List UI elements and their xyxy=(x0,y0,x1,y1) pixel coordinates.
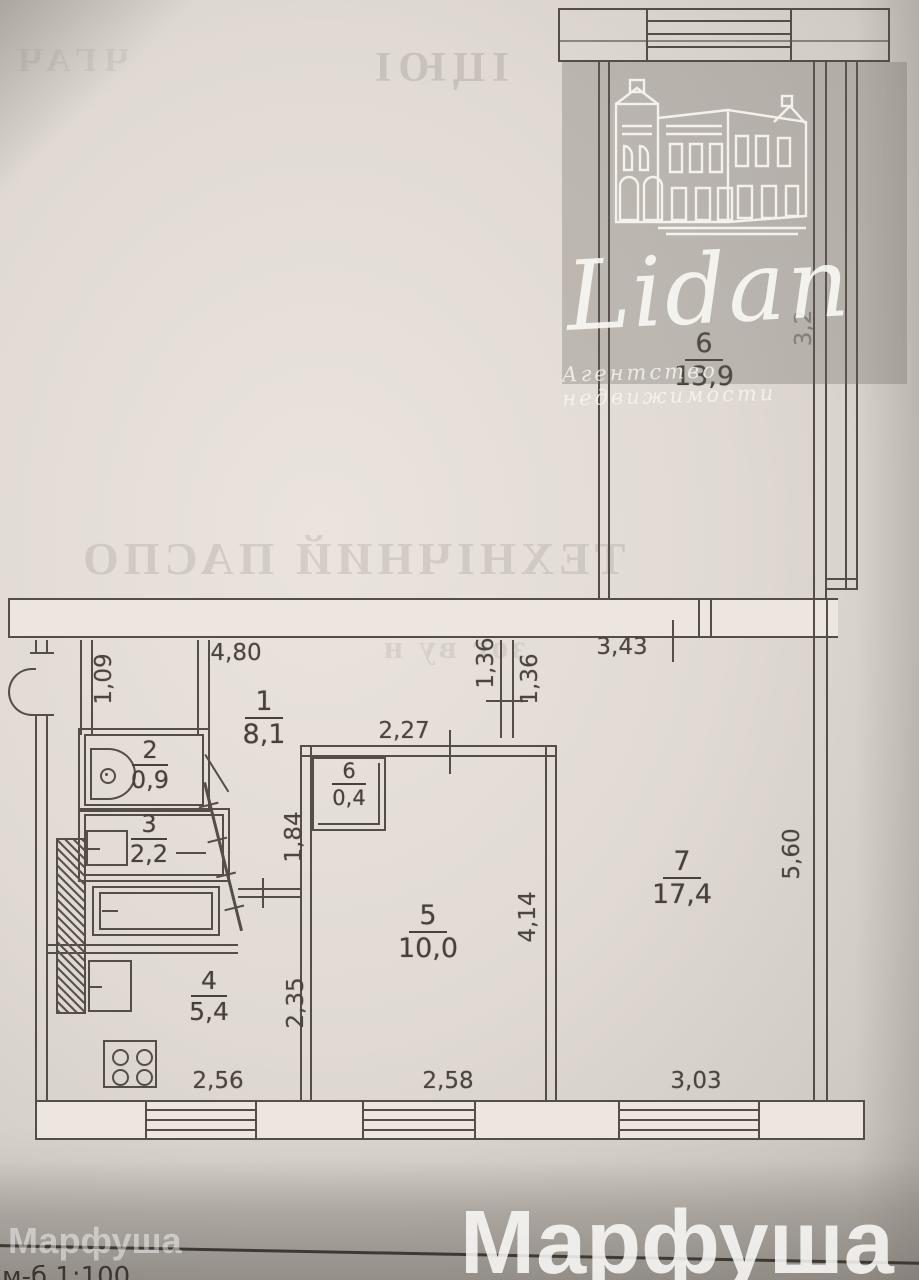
photo-watermark-large: Марфуша xyxy=(460,1192,894,1280)
vent-shaft-hatched xyxy=(56,838,86,1014)
top-wall-band xyxy=(8,598,838,638)
band-tick xyxy=(672,620,674,662)
bleed-top-left-fragment: ЧГАЧ xyxy=(10,42,129,80)
door-tick xyxy=(262,878,264,908)
dimension-hall-top: 4,80 xyxy=(200,640,272,666)
wall-jog xyxy=(826,578,858,590)
dimension-kitchen-bottom: 2,56 xyxy=(182,1068,254,1094)
room5-right-wall xyxy=(545,745,557,1100)
kitchen-door-wall xyxy=(238,888,302,898)
scale-note: м-б 1:100 xyxy=(2,1262,130,1280)
photo-watermark-small: Марфуша xyxy=(8,1220,182,1262)
room-label-7: 7 17,4 xyxy=(642,848,722,910)
bathtub-icon xyxy=(92,886,220,936)
dimension-room7-bottom: 3,03 xyxy=(660,1068,732,1094)
band-partition-stub xyxy=(698,598,712,638)
window-room7 xyxy=(618,1102,760,1138)
agency-tagline: Агентство недвижимости xyxy=(561,353,912,410)
entrance-bump xyxy=(8,668,36,716)
bleed-mirrored-title: ТЕХНІЧНИЙ ПАСПО xyxy=(78,532,625,585)
room-label-2: 2 0,9 xyxy=(118,738,182,793)
stove-icon xyxy=(103,1040,157,1088)
dimension-room5-top: 2,27 xyxy=(368,718,440,744)
bleed-top-right-fragment: ІЦЮІ xyxy=(368,44,509,92)
dimension-hall-right: 3,43 xyxy=(586,634,658,660)
room-label-1: 1 8,1 xyxy=(226,688,302,750)
agency-building-icon xyxy=(578,66,838,241)
dimension-tick xyxy=(449,730,451,774)
dimension-room5-side: 4,14 xyxy=(515,881,541,953)
dimension-room5-bottom: 2,58 xyxy=(412,1068,484,1094)
room-label-3: 3 2,2 xyxy=(116,812,182,867)
door-cap xyxy=(30,652,54,654)
dimension-kitchen-side: 2,35 xyxy=(283,967,309,1039)
dimension-stub-right: 1,36 xyxy=(517,643,543,715)
dimension-room7-side: 5,60 xyxy=(779,818,805,890)
kitchen-sink-icon xyxy=(88,960,132,1012)
dimension-closet-side: 1,84 xyxy=(281,801,307,873)
dimension-hall-left: 1,09 xyxy=(91,643,117,715)
floor-plan-photo: ЧГАЧ ІЦЮІ ТЕХНІЧНИЙ ПАСПО зог ву н 6 13,… xyxy=(0,0,919,1280)
balcony-window xyxy=(646,10,792,60)
room-label-5: 5 10,0 xyxy=(388,902,468,964)
agency-brand-script: Lidan xyxy=(563,223,908,353)
window-kitchen xyxy=(145,1102,257,1138)
room-label-4: 4 5,4 xyxy=(176,968,242,1026)
right-outer-wall xyxy=(813,598,828,1100)
window-room5 xyxy=(362,1102,476,1138)
room-label-6-closet: 6 0,4 xyxy=(318,760,380,809)
hall-partition-stub xyxy=(500,640,514,738)
dimension-stub-left: 1,36 xyxy=(473,627,499,699)
room5-left-wall xyxy=(300,745,312,1100)
room5-top-wall xyxy=(300,745,557,757)
